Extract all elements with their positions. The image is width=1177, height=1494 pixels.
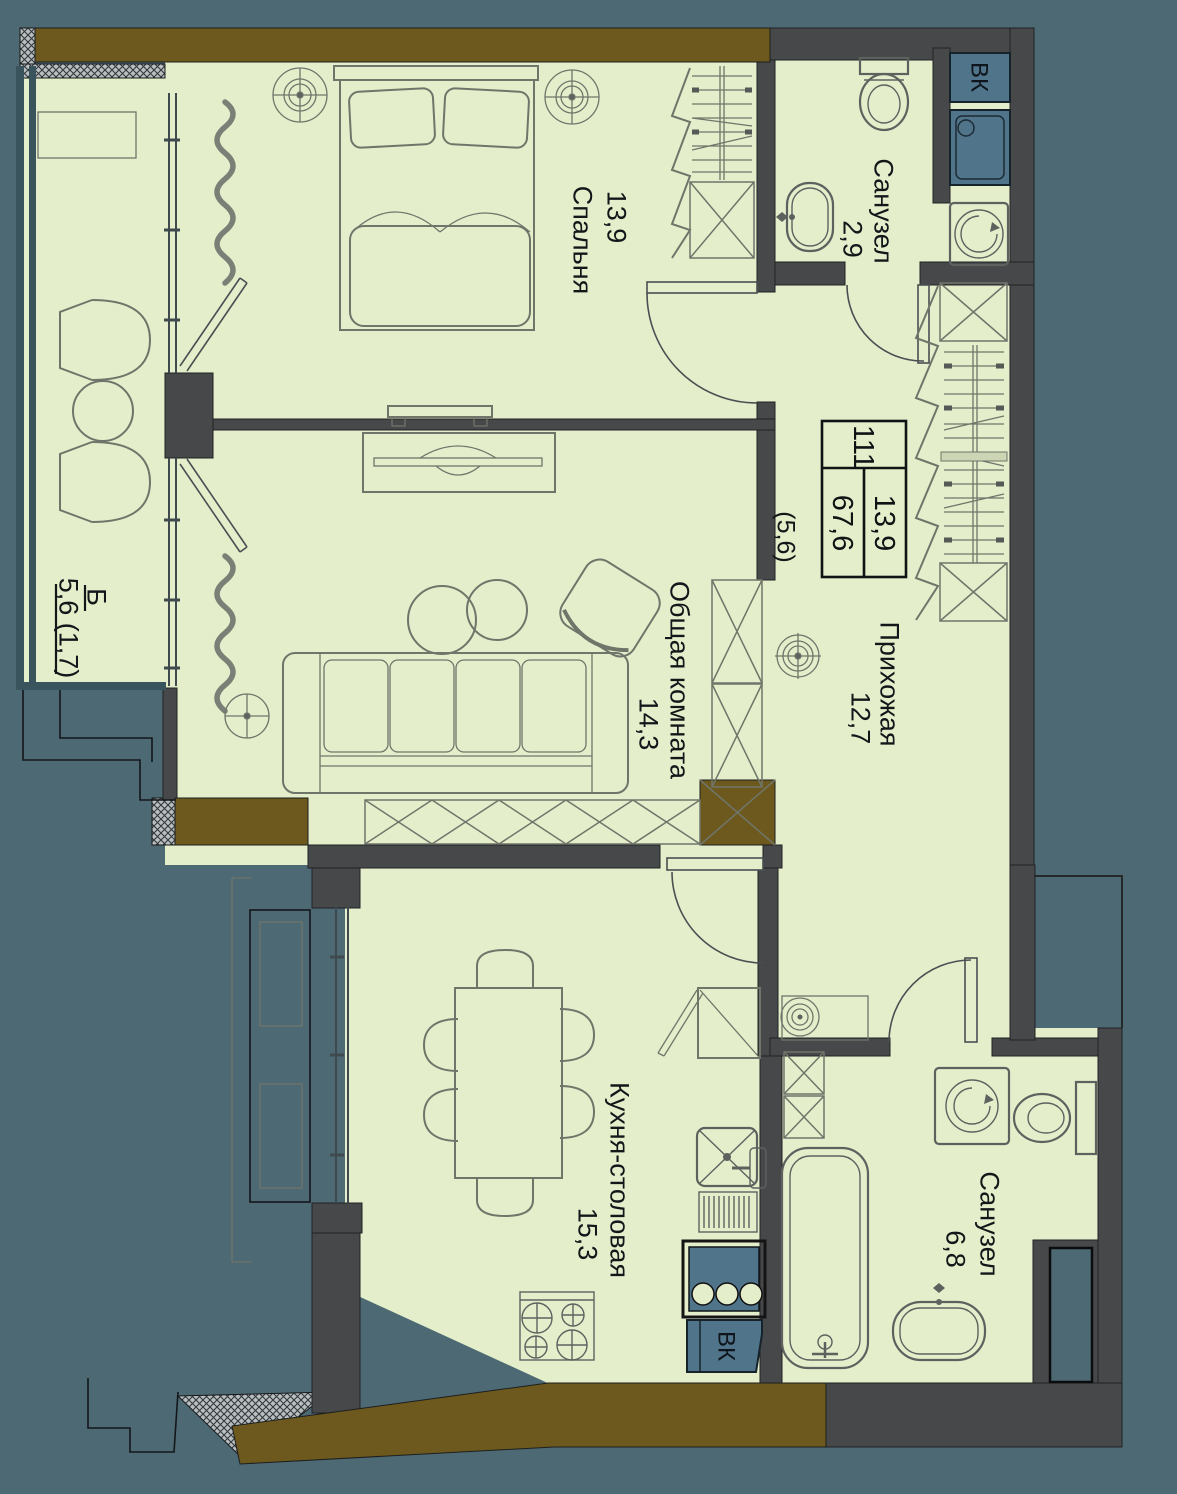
- wall-duct-bath-top: [933, 48, 950, 203]
- vent-label-top: ВК: [966, 62, 993, 92]
- stamp-apartment-number: 111: [847, 425, 879, 469]
- vent-label-bottom: ВК: [713, 1331, 740, 1361]
- ceiling-lamp-icon: [273, 68, 327, 122]
- wall-right: [1010, 28, 1034, 865]
- stamp-total-area: 67,6: [826, 495, 858, 551]
- floor-lamp-icon: [225, 694, 269, 738]
- room-area: 14,3: [634, 698, 664, 751]
- wall-kitchen-bath: [760, 1056, 782, 1390]
- wall-bath-bottom-top-l: [770, 1038, 890, 1056]
- hatch-top-left-h: [20, 64, 165, 78]
- wall-living-kitchen: [308, 845, 660, 868]
- room-area: 15,3: [573, 1208, 603, 1261]
- wall-balcony-pillar: [165, 373, 213, 458]
- room-name: Санузел: [869, 158, 899, 263]
- balcony-rail-inner: [29, 66, 36, 688]
- door-bedroom-leaf: [647, 282, 757, 293]
- balcony-rail-bottom: [16, 682, 166, 690]
- room-name: Общая комната: [665, 581, 695, 780]
- vent-shaft-kitchen: ВК: [687, 1320, 762, 1372]
- accent-mid-left: [175, 798, 308, 845]
- room-area: 6,8: [941, 1230, 971, 1268]
- room-name: Кухня-столовая: [605, 1082, 635, 1278]
- room-area: 12,7: [846, 692, 876, 745]
- wall-bath-bottom-right: [1098, 1028, 1122, 1388]
- wall-kitchen-pier-top: [312, 868, 360, 908]
- oven-icon: [683, 1241, 765, 1317]
- room-area: 2,9: [838, 220, 868, 258]
- room-area: 5,6 (1,7): [54, 578, 84, 679]
- floor-plan-svg: 111 67,6 13,9 (5,6) ВК: [0, 0, 1177, 1494]
- balcony-note: (5,6): [771, 511, 799, 562]
- wall-kitchen-pier-bottom: [312, 1203, 362, 1233]
- door-bath-top-leaf: [918, 285, 929, 363]
- floor-plan-canvas: 111 67,6 13,9 (5,6) ВК: [0, 0, 1177, 1494]
- wall-left-lower: [163, 688, 177, 800]
- room-name: Санузел: [975, 1171, 1005, 1276]
- niche-bottom-right: [1050, 1248, 1092, 1382]
- wall-living-kitchen-r: [763, 845, 782, 868]
- stamp-living-area: 13,9: [868, 495, 900, 551]
- shower-tray: [950, 110, 1010, 185]
- room-name: Спальня: [568, 186, 598, 295]
- accent-top: [35, 28, 770, 62]
- ceiling-lamp-icon: [545, 70, 599, 124]
- wall-bottom-band: [826, 1383, 1122, 1447]
- room-area: 13,9: [602, 191, 632, 244]
- wall-corridor-right: [1010, 865, 1035, 1040]
- balcony-rail-outer: [16, 66, 24, 688]
- room-name: Прихожая: [875, 621, 905, 746]
- hatch-mid-left: [152, 798, 175, 845]
- wall-bedroom-living: [213, 419, 775, 430]
- wall-kitchen-column: [312, 1233, 360, 1413]
- wall-bath-top-left: [775, 262, 845, 285]
- wall-bedroom-hall: [757, 60, 775, 292]
- door-kitchen-leaf: [667, 858, 763, 870]
- door-bath-bottom-leaf: [965, 958, 977, 1042]
